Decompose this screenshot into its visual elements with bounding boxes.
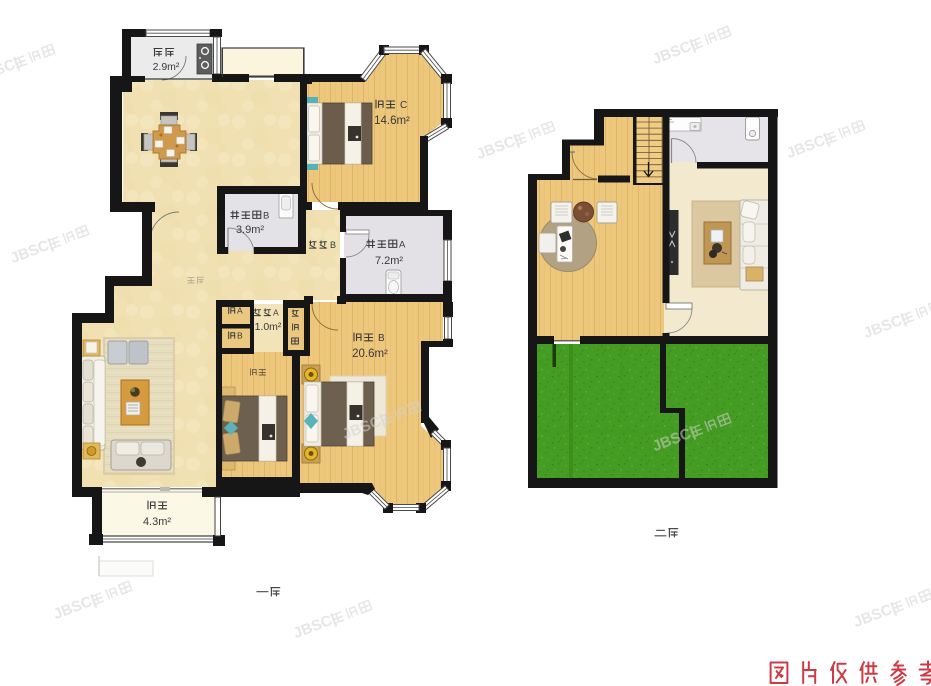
- svg-text:B: B: [237, 331, 243, 341]
- svg-text:B: B: [378, 333, 385, 344]
- svg-text:20.6m²: 20.6m²: [352, 348, 388, 360]
- svg-text:B: B: [330, 240, 336, 250]
- svg-text:2.9m²: 2.9m²: [153, 61, 180, 73]
- svg-text:4.3m²: 4.3m²: [143, 516, 171, 528]
- svg-text:C: C: [400, 100, 407, 111]
- svg-text:JBSC|: JBSC|: [0, 54, 21, 86]
- svg-text:A: A: [273, 308, 279, 318]
- svg-text:B: B: [263, 211, 269, 222]
- svg-text:1.0m²: 1.0m²: [255, 321, 282, 333]
- svg-text:A: A: [237, 306, 243, 316]
- svg-text:A: A: [399, 240, 406, 251]
- svg-text:7.2m²: 7.2m²: [375, 255, 403, 267]
- svg-text:14.6m²: 14.6m²: [374, 115, 410, 127]
- svg-text:3.9m²: 3.9m²: [236, 224, 264, 236]
